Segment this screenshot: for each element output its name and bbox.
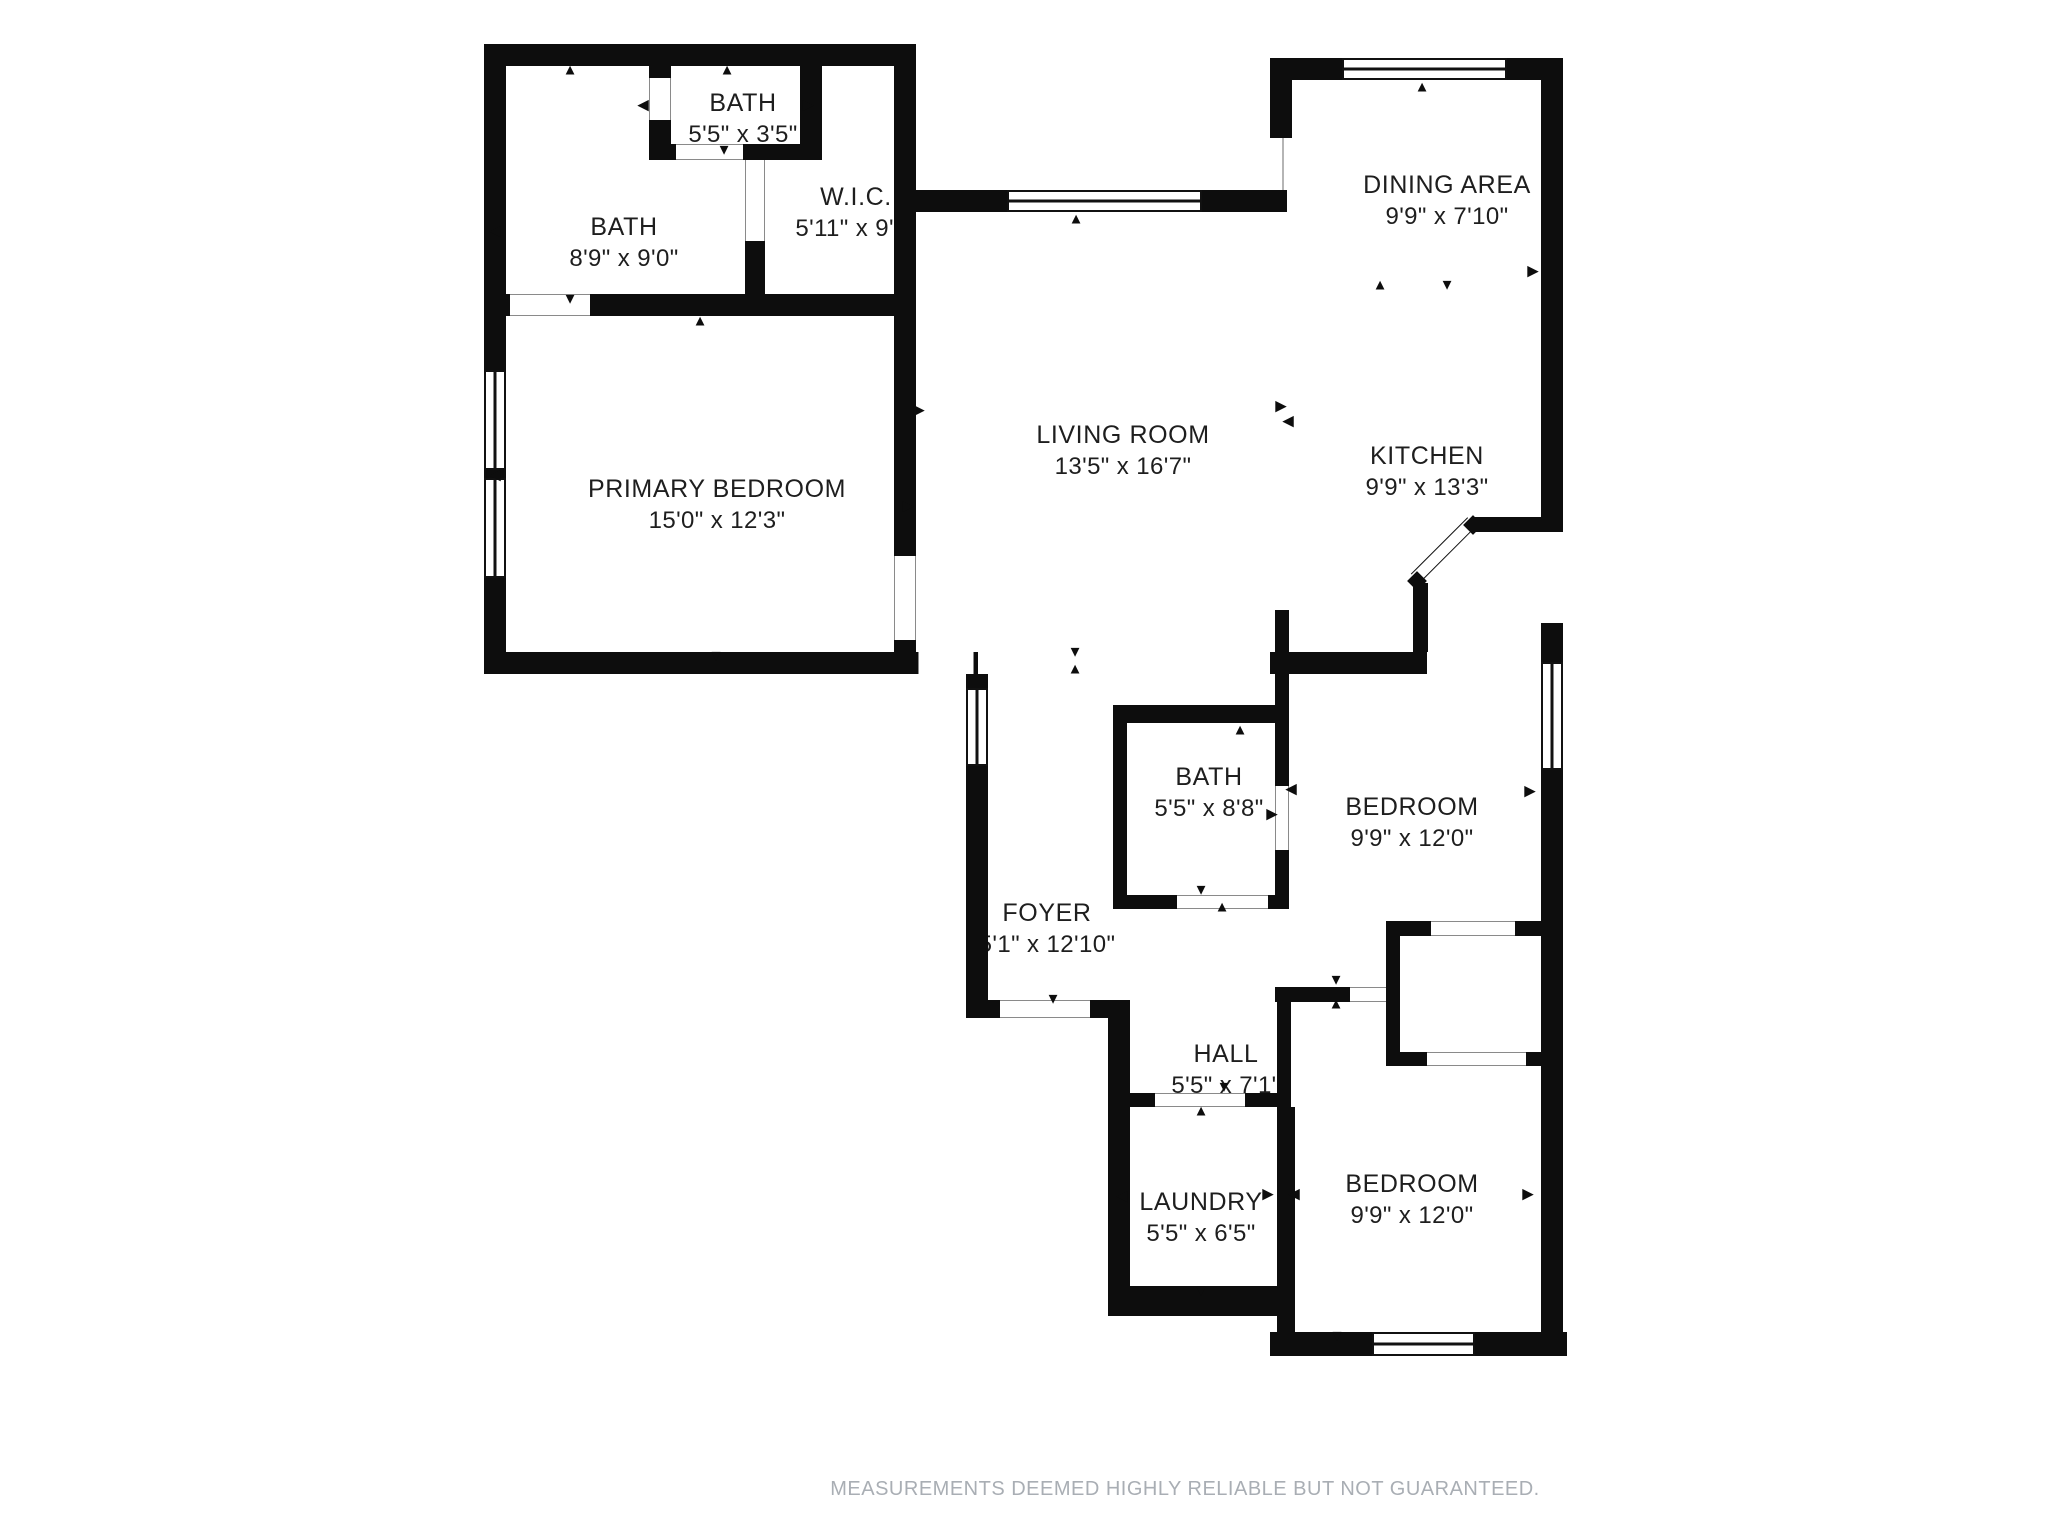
- door-swing-icon: ▼: [709, 649, 724, 664]
- door-swing-icon: ▲: [1194, 1104, 1209, 1119]
- door-swing-icon: ▲: [1215, 900, 1230, 915]
- door-opening: [510, 294, 590, 316]
- wall-segment: [484, 44, 916, 66]
- wall-segment: [1277, 1107, 1295, 1354]
- door-swing-icon: ▶: [802, 98, 814, 113]
- room-boundary-line: [1282, 138, 1284, 190]
- door-swing-icon: ▶: [1524, 784, 1536, 799]
- floor-plan: BATH5'5" x 3'5" BATH8'9" x 9'0" W.I.C.5'…: [0, 0, 2048, 1536]
- window: [1372, 1332, 1475, 1356]
- door-swing-icon: ▼: [1068, 645, 1083, 660]
- closet-slider-opening: [1427, 1052, 1526, 1066]
- room-label-bedroom-upper: BEDROOM9'9" x 12'0": [1345, 792, 1478, 855]
- room-label-primary-bedroom: PRIMARY BEDROOM15'0" x 12'3": [588, 474, 846, 537]
- room-label-bedroom-lower: BEDROOM9'9" x 12'0": [1345, 1169, 1478, 1232]
- door-swing-icon: ▶: [1527, 264, 1539, 279]
- room-label-dining-area: DINING AREA9'9" x 7'10": [1363, 170, 1531, 233]
- disclaimer-text: MEASUREMENTS DEEMED HIGHLY RELIABLE BUT …: [830, 1478, 1540, 1501]
- door-swing-icon: ▼: [1194, 1284, 1209, 1299]
- door-swing-icon: ▼: [1329, 973, 1344, 988]
- wall-segment: [966, 1000, 1000, 1018]
- door-swing-icon: ▶: [1522, 1187, 1534, 1202]
- door-swing-icon: ▶: [1266, 807, 1278, 822]
- door-swing-icon: ▼: [1194, 883, 1209, 898]
- door-opening: [894, 556, 916, 640]
- door-swing-icon: ▼: [1330, 1329, 1345, 1344]
- door-opening: [918, 652, 974, 674]
- wall-segment: [1541, 58, 1563, 517]
- door-swing-icon: ▲: [1233, 723, 1248, 738]
- room-label-bath-main: BATH8'9" x 9'0": [569, 212, 678, 275]
- door-swing-icon: ◀: [1288, 1187, 1300, 1202]
- door-swing-icon: ◀: [489, 468, 501, 483]
- room-label-laundry: LAUNDRY5'5" x 6'5": [1139, 1187, 1262, 1250]
- wall-segment: [1090, 1000, 1130, 1018]
- door-opening: [1350, 987, 1386, 1002]
- door-swing-icon: ▲: [1415, 80, 1430, 95]
- door-swing-icon: ▲: [1069, 212, 1084, 227]
- room-label-kitchen: KITCHEN9'9" x 13'3": [1365, 441, 1488, 504]
- door-opening: [745, 160, 765, 241]
- door-swing-icon: ▲: [563, 63, 578, 78]
- door-swing-icon: ▶: [913, 403, 925, 418]
- wall-segment: [1108, 1018, 1130, 1316]
- wall-segment: [1413, 583, 1428, 652]
- room-label-living-room: LIVING ROOM13'5" x 16'7": [1036, 420, 1209, 483]
- window: [1541, 662, 1563, 770]
- door-swing-icon: ◀: [1285, 782, 1297, 797]
- wall-segment: [484, 44, 506, 674]
- door-swing-icon: ▲: [1068, 662, 1083, 677]
- door-swing-icon: ▲: [1329, 997, 1344, 1012]
- door-opening: [649, 78, 671, 120]
- door-swing-icon: ▼: [563, 292, 578, 307]
- window: [1007, 190, 1202, 212]
- door-swing-icon: ▼: [1217, 1080, 1232, 1095]
- window: [966, 688, 988, 766]
- wall-segment: [1275, 610, 1289, 705]
- closet-slider-opening: [1431, 921, 1515, 936]
- room-label-foyer: FOYER5'1" x 12'10": [979, 898, 1116, 961]
- wall-segment: [1541, 623, 1563, 662]
- door-swing-icon: ◀: [637, 98, 649, 113]
- room-label-bath-mid: BATH5'5" x 8'8": [1154, 762, 1263, 825]
- wall-segment: [1386, 921, 1400, 1066]
- door-swing-icon: ▲: [720, 63, 735, 78]
- wall-segment: [484, 652, 978, 674]
- door-swing-icon: ▲: [693, 314, 708, 329]
- wall-segment: [1473, 517, 1563, 532]
- door-opening: [676, 144, 743, 160]
- door-swing-icon: ▼: [717, 143, 732, 158]
- wall-segment: [1277, 1002, 1291, 1107]
- room-label-bath-small: BATH5'5" x 3'5": [688, 88, 797, 151]
- door-swing-icon: ▶: [1275, 399, 1287, 414]
- wall-segment: [1270, 58, 1292, 138]
- window: [1342, 58, 1507, 80]
- door-swing-icon: ▼: [1046, 992, 1061, 1007]
- door-swing-icon: ▶: [902, 499, 914, 514]
- door-swing-icon: ◀: [489, 224, 501, 239]
- door-swing-icon: ▼: [1440, 278, 1455, 293]
- door-swing-icon: ◀: [1116, 1189, 1128, 1204]
- window: [484, 370, 506, 470]
- wall-segment: [1113, 705, 1127, 896]
- door-swing-icon: ▶: [1262, 1187, 1274, 1202]
- door-swing-icon: ◀: [1282, 414, 1294, 429]
- door-swing-icon: ▲: [1373, 278, 1388, 293]
- window: [484, 478, 506, 578]
- wall-segment: [1270, 652, 1427, 674]
- wall-segment: [1113, 705, 1277, 723]
